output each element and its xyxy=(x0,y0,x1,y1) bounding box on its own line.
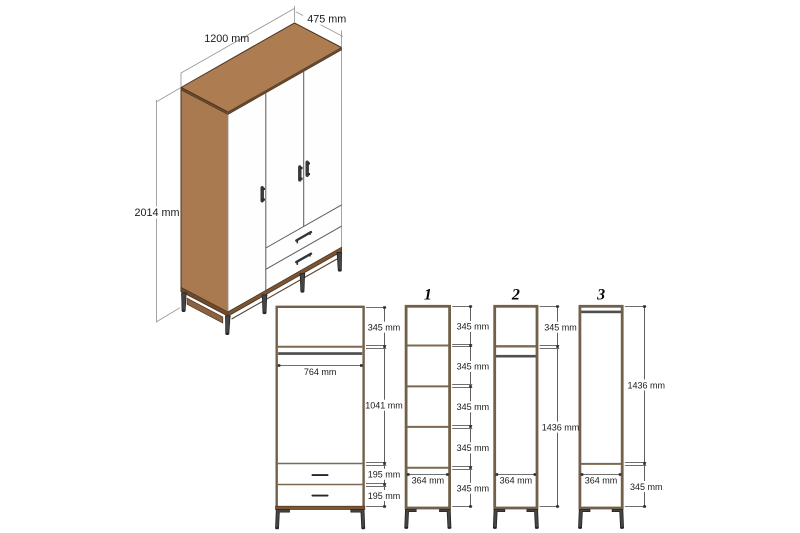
svg-text:364 mm: 364 mm xyxy=(500,476,533,486)
svg-text:364 mm: 364 mm xyxy=(585,475,618,485)
svg-text:1200 mm: 1200 mm xyxy=(204,33,249,45)
svg-text:195 mm: 195 mm xyxy=(368,491,401,501)
svg-text:345 mm: 345 mm xyxy=(457,443,490,453)
svg-text:345 mm: 345 mm xyxy=(630,482,663,492)
svg-text:345 mm: 345 mm xyxy=(457,322,490,332)
svg-text:364 mm: 364 mm xyxy=(412,476,445,486)
svg-text:3: 3 xyxy=(596,287,605,304)
svg-text:1436 mm: 1436 mm xyxy=(542,422,580,432)
svg-text:2014 mm: 2014 mm xyxy=(134,207,179,219)
svg-text:1: 1 xyxy=(424,287,432,304)
svg-text:2: 2 xyxy=(511,287,520,304)
svg-text:345 mm: 345 mm xyxy=(544,323,577,333)
svg-text:764 mm: 764 mm xyxy=(304,367,337,377)
svg-text:345 mm: 345 mm xyxy=(368,323,401,333)
svg-text:475 mm: 475 mm xyxy=(307,14,346,26)
svg-text:345 mm: 345 mm xyxy=(457,402,490,412)
svg-text:345 mm: 345 mm xyxy=(457,362,490,372)
svg-text:195 mm: 195 mm xyxy=(368,470,401,480)
svg-text:1436 mm: 1436 mm xyxy=(628,380,666,390)
svg-text:1041 mm: 1041 mm xyxy=(365,401,403,411)
svg-text:345 mm: 345 mm xyxy=(457,484,490,494)
